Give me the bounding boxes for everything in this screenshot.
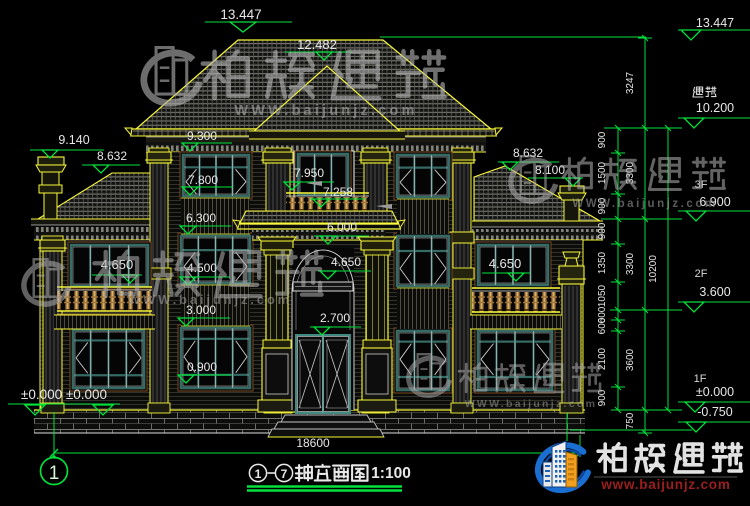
svg-text:±0.000 ±0.000: ±0.000 ±0.000 [21,387,107,402]
svg-text:750: 750 [625,412,636,429]
svg-text:2F: 2F [695,268,708,280]
svg-text:9.300: 9.300 [187,129,217,143]
svg-text:1: 1 [49,463,60,484]
svg-text:3247: 3247 [625,71,636,94]
svg-text:7.800: 7.800 [188,173,218,187]
svg-text:WWW.baijunjz.com: WWW.baijunjz.com [234,103,417,119]
svg-text:7.950: 7.950 [294,166,324,180]
svg-text:±0.000: ±0.000 [696,385,734,399]
svg-text:10200: 10200 [648,255,659,283]
svg-text:3300: 3300 [625,252,636,275]
svg-text:WWW.baijunjz.com: WWW.baijunjz.com [572,198,717,210]
svg-text:4.650: 4.650 [489,256,522,271]
svg-text:12.482: 12.482 [297,37,337,52]
svg-text:3600: 3600 [625,348,636,371]
svg-text:1:100: 1:100 [371,465,411,482]
svg-text:900: 900 [597,222,608,239]
svg-text:-0.750: -0.750 [697,405,732,419]
svg-text:1050: 1050 [597,284,608,307]
svg-text:2.700: 2.700 [320,311,350,325]
svg-text:4.650: 4.650 [331,255,361,269]
svg-text:8.632: 8.632 [97,149,127,163]
svg-text:900: 900 [597,131,608,148]
svg-text:3.600: 3.600 [699,285,730,299]
svg-text:1F: 1F [694,373,707,385]
svg-text:13.447: 13.447 [696,16,734,30]
svg-text:10.200: 10.200 [696,101,734,115]
svg-text:18600: 18600 [296,436,330,450]
svg-text:WWW.baijunjz.com: WWW.baijunjz.com [465,398,598,410]
svg-text:6.300: 6.300 [186,211,216,225]
svg-text:7: 7 [281,467,288,481]
svg-text:1: 1 [255,467,262,481]
svg-text:6.000: 6.000 [327,220,357,234]
svg-text:600: 600 [597,317,608,334]
svg-text:www.baijunjz.com: www.baijunjz.com [600,477,730,492]
svg-text:13.447: 13.447 [220,7,261,22]
svg-text:7.258: 7.258 [323,185,353,199]
svg-text:0.900: 0.900 [187,360,217,374]
svg-text:WWW.baijunjz.com: WWW.baijunjz.com [128,292,292,307]
svg-text:1350: 1350 [597,251,608,274]
svg-text:9.140: 9.140 [58,133,89,147]
